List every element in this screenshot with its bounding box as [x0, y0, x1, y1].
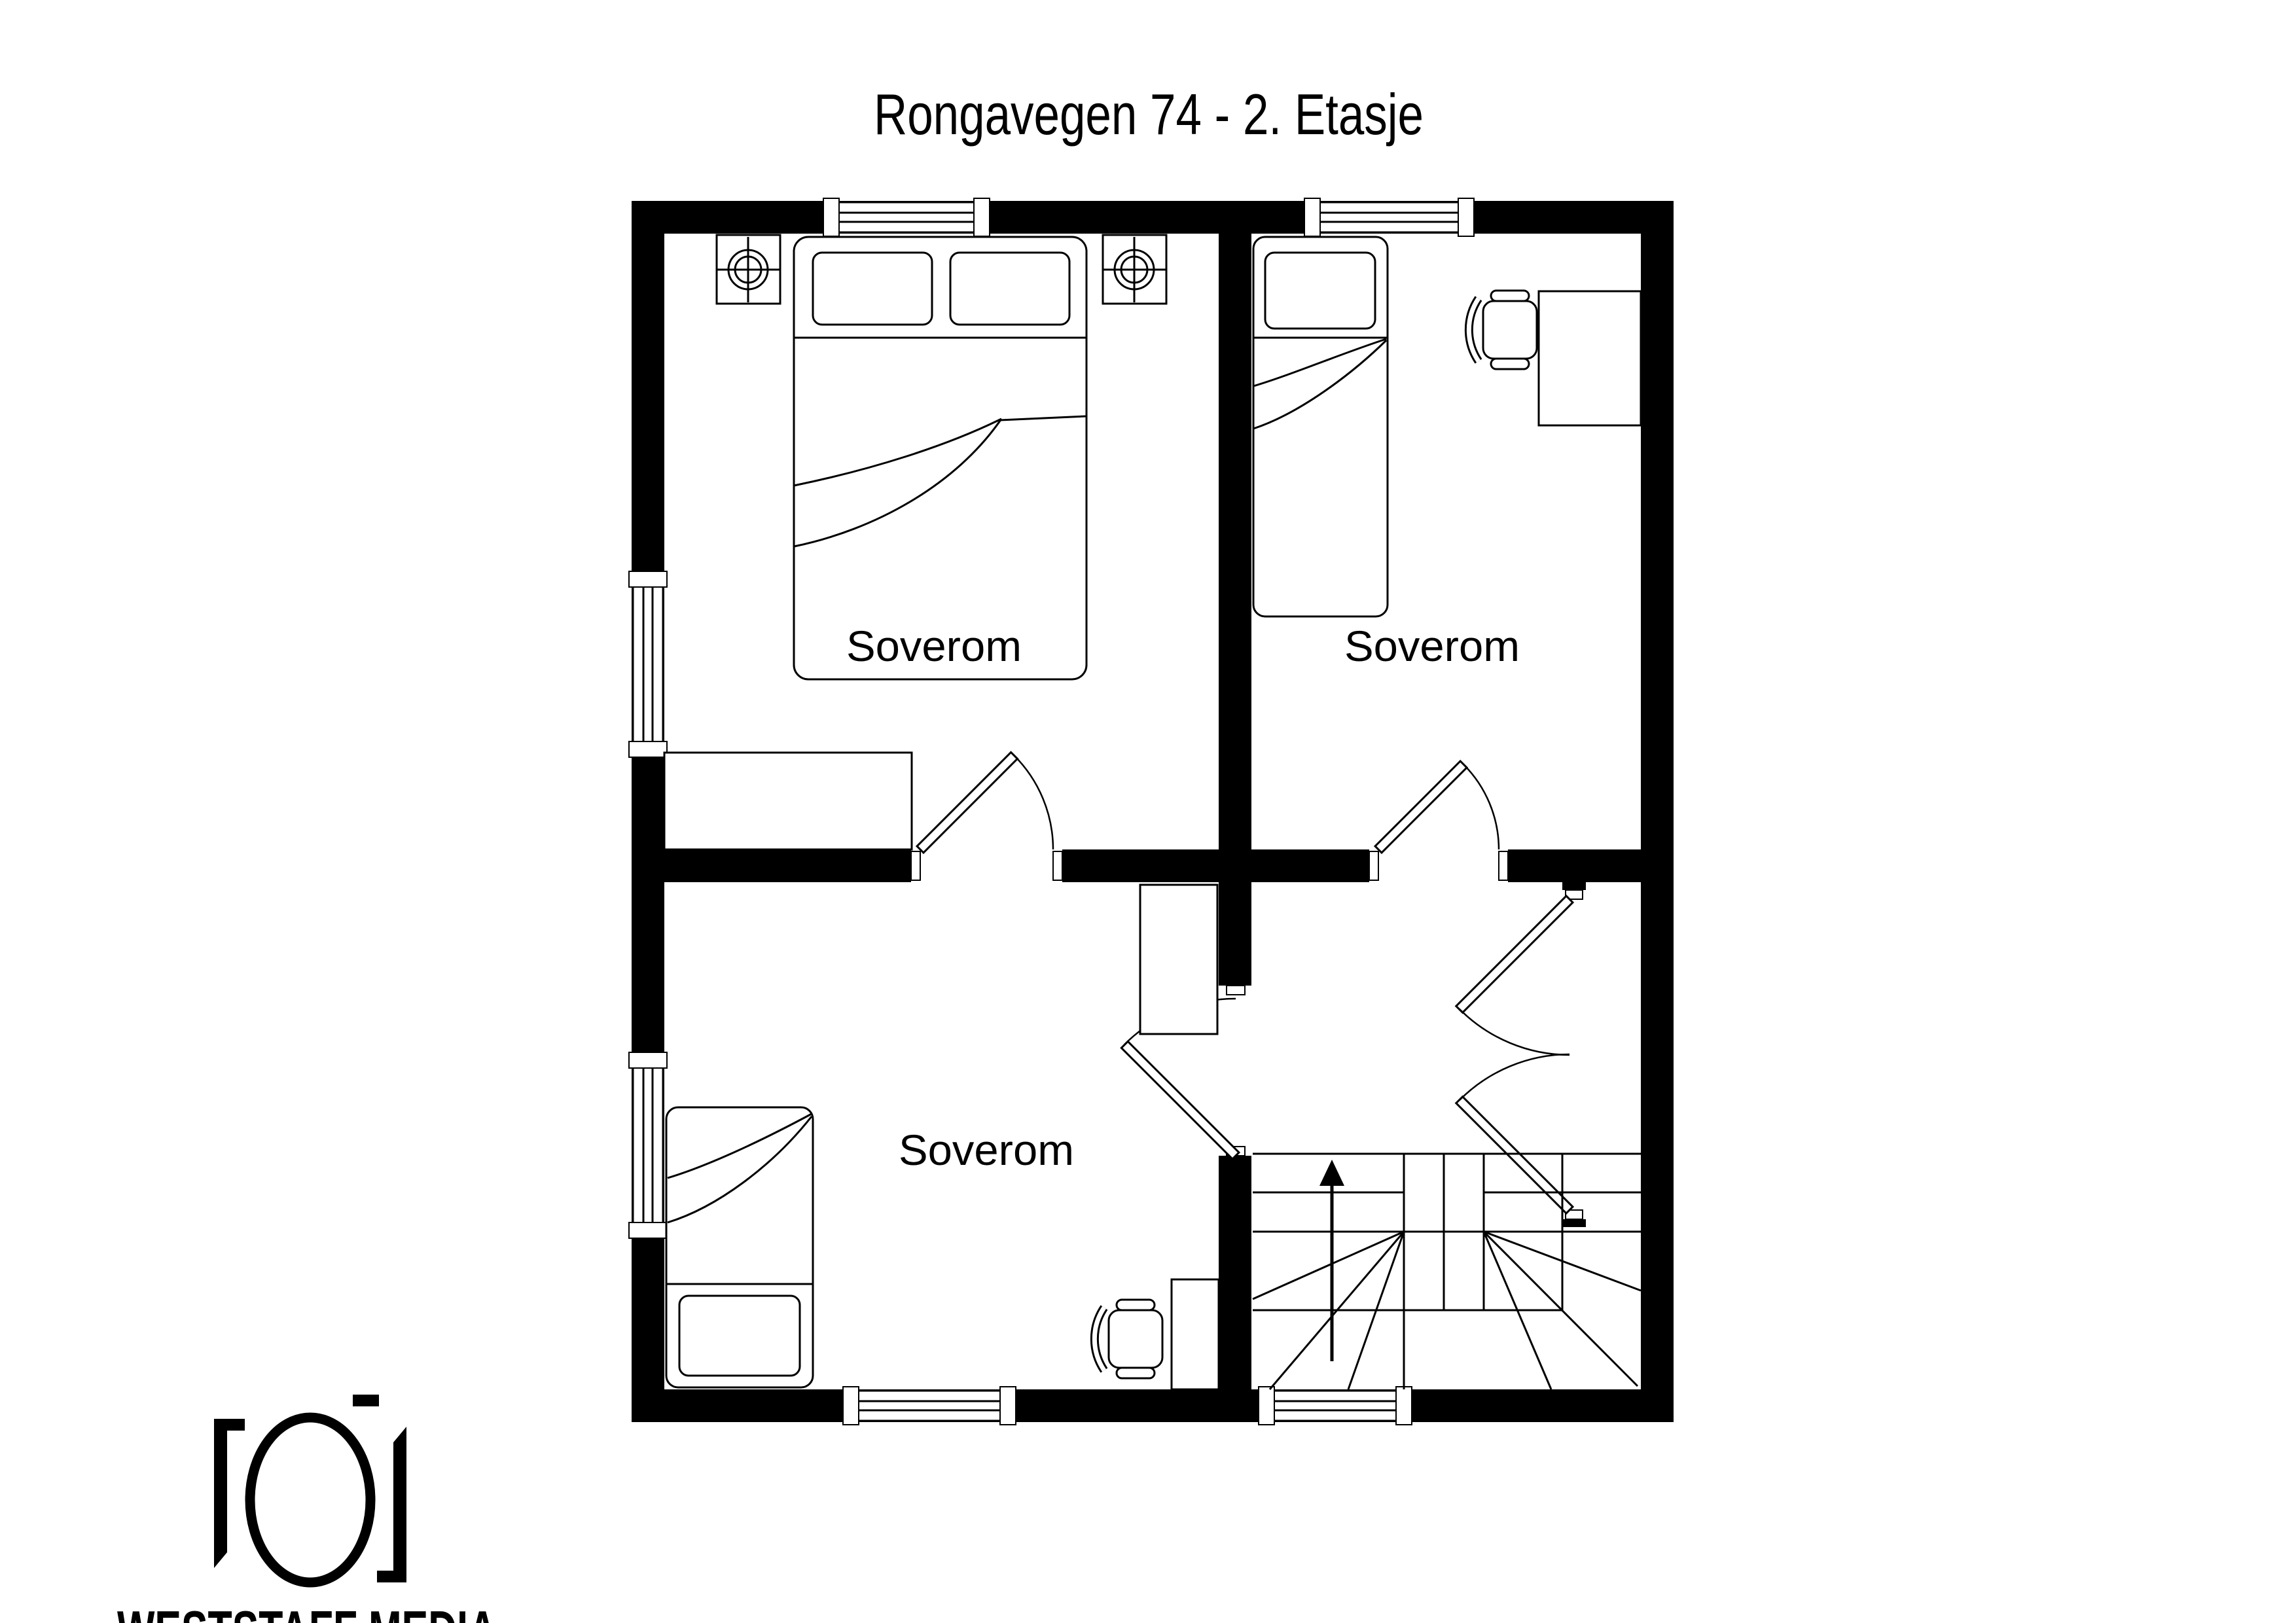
- door-bedroom-top-right: [1369, 761, 1508, 880]
- pillow: [679, 1296, 800, 1376]
- floor-plan-page: Rongavegen 74 - 2. Etasje: [0, 0, 2296, 1623]
- wall-middle-a: [664, 849, 911, 882]
- single-bed: [1253, 237, 1388, 616]
- window-bottom-left: [843, 1387, 1016, 1425]
- office-chair: [1469, 291, 1537, 369]
- wardrobe: [664, 753, 912, 849]
- wall-right: [1641, 201, 1674, 1422]
- window-left-upper: [629, 571, 667, 757]
- desk: [1539, 291, 1641, 425]
- plan-title: Rongavegen 74 - 2. Etasje: [874, 82, 1424, 147]
- floor-plan-canvas: Rongavegen 74 - 2. Etasje: [0, 0, 2296, 1623]
- ceiling-lamp-icon: [1102, 235, 1166, 304]
- logo: WESTSTAFF MEDIA: [117, 1395, 497, 1623]
- furniture-bedroom-top-left: [664, 235, 1166, 849]
- wardrobe: [1140, 885, 1217, 1034]
- wall-east-lower: [1219, 1156, 1251, 1389]
- logo-text: WESTSTAFF MEDIA: [117, 1599, 497, 1623]
- wall-middle-c: [1508, 849, 1641, 882]
- pillow: [813, 253, 932, 325]
- staircase: [1253, 1154, 1641, 1389]
- wall-divider-top: [1219, 234, 1251, 849]
- wall-left: [632, 201, 664, 1422]
- wall-top: [632, 201, 1674, 234]
- room-label-bedroom-top-right: Soverom: [1344, 622, 1520, 670]
- pillow: [950, 253, 1069, 325]
- wall-middle-b: [1062, 849, 1369, 882]
- wall-east-upper: [1219, 882, 1251, 986]
- ceiling-lamp-icon: [716, 235, 780, 304]
- room-label-bedroom-bottom-left: Soverom: [899, 1126, 1074, 1174]
- window-top-right: [1304, 198, 1474, 236]
- double-bed: [794, 237, 1086, 679]
- single-bed: [666, 1107, 813, 1387]
- pillow: [1265, 253, 1375, 329]
- door-hall-lower: [1456, 1054, 1583, 1219]
- wall-jamb-stub-top: [1562, 882, 1586, 890]
- camera-icon: [214, 1395, 406, 1582]
- wall-jamb-stub-bottom: [1562, 1219, 1586, 1227]
- room-label-bedroom-top-left: Soverom: [846, 622, 1022, 670]
- wall-bottom: [632, 1389, 1674, 1422]
- window-left-lower: [629, 1052, 667, 1238]
- door-hall-upper: [1456, 890, 1583, 1055]
- desk: [1172, 1279, 1219, 1389]
- window-bottom-right: [1259, 1387, 1412, 1425]
- window-top-left: [823, 198, 990, 236]
- office-chair: [1094, 1300, 1162, 1378]
- door-bedroom-top-left: [911, 753, 1062, 880]
- furniture-bedroom-top-right: [1253, 237, 1641, 616]
